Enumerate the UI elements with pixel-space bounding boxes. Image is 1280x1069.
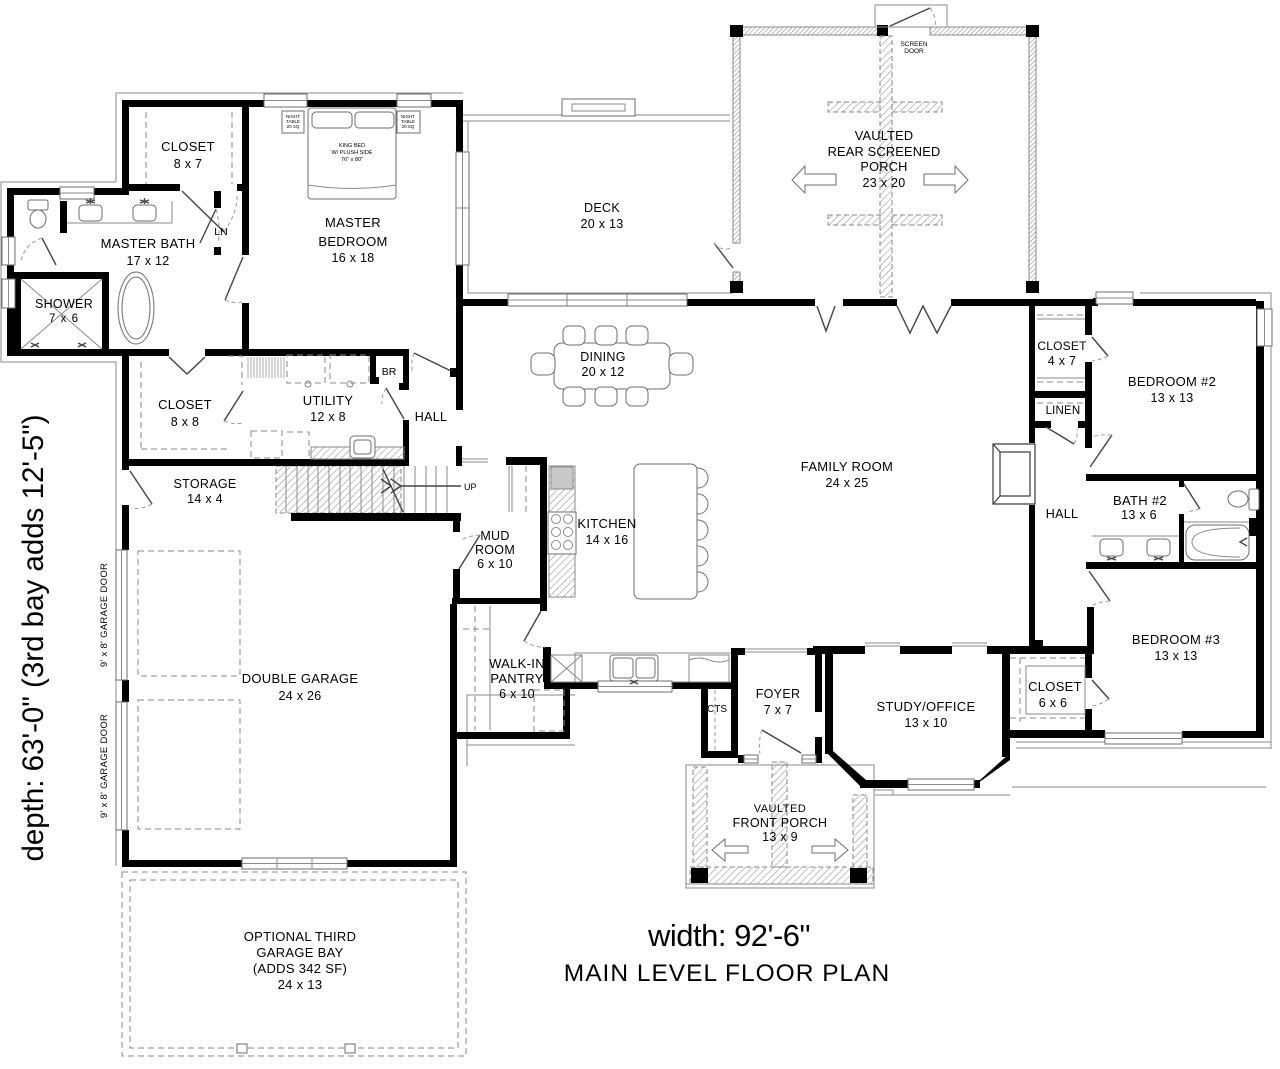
svg-text:MASTER: MASTER	[325, 215, 381, 230]
svg-text:6 x 10: 6 x 10	[477, 557, 513, 571]
svg-text:20 x 13: 20 x 13	[580, 217, 623, 231]
svg-text:CLOSET: CLOSET	[1037, 339, 1087, 353]
svg-text:13 x 10: 13 x 10	[904, 716, 947, 730]
svg-text:REAR SCREENED: REAR SCREENED	[828, 144, 941, 159]
svg-text:(ADDS 342 SF): (ADDS 342 SF)	[253, 961, 347, 976]
svg-text:23 x 20: 23 x 20	[862, 176, 905, 190]
svg-text:depth: 63'-0" (3rd bay adds 12: depth: 63'-0" (3rd bay adds 12'-5")	[17, 414, 50, 861]
svg-text:BEDROOM #2: BEDROOM #2	[1128, 374, 1216, 389]
svg-text:FOYER: FOYER	[756, 687, 801, 701]
svg-text:20 x 12: 20 x 12	[581, 365, 624, 379]
svg-text:HALL: HALL	[1046, 507, 1078, 521]
svg-text:CLOSET: CLOSET	[1028, 679, 1082, 694]
svg-text:FAMILY ROOM: FAMILY ROOM	[801, 459, 893, 474]
svg-text:WALK-IN: WALK-IN	[489, 656, 545, 671]
svg-text:CLOSET: CLOSET	[161, 139, 215, 154]
svg-text:CTS: CTS	[707, 704, 727, 715]
svg-text:UP: UP	[464, 482, 477, 492]
svg-text:BR: BR	[382, 366, 397, 378]
svg-text:UTILITY: UTILITY	[303, 393, 354, 408]
svg-text:7 x 7: 7 x 7	[764, 703, 793, 717]
svg-text:9' x 8' GARAGE DOOR: 9' x 8' GARAGE DOOR	[99, 563, 110, 667]
svg-text:6 x 6: 6 x 6	[1039, 696, 1068, 710]
svg-text:BEDROOM #3: BEDROOM #3	[1132, 632, 1220, 647]
svg-text:STUDY/OFFICE: STUDY/OFFICE	[877, 699, 976, 714]
svg-text:W/ PLUSH SIDE: W/ PLUSH SIDE	[332, 150, 373, 156]
svg-text:14 x 4: 14 x 4	[187, 492, 223, 506]
svg-text:STORAGE: STORAGE	[174, 477, 237, 491]
svg-text:DINING: DINING	[580, 350, 626, 364]
svg-text:KING BED: KING BED	[339, 143, 365, 149]
svg-text:FRONT PORCH: FRONT PORCH	[733, 816, 828, 830]
svg-text:16 x 18: 16 x 18	[331, 251, 374, 265]
svg-text:CLOSET: CLOSET	[158, 397, 212, 412]
svg-text:SCREEN: SCREEN	[900, 41, 927, 48]
svg-text:4 x 7: 4 x 7	[1048, 354, 1077, 368]
svg-text:14 x 16: 14 x 16	[585, 533, 628, 547]
svg-text:MUD: MUD	[480, 529, 509, 543]
svg-text:MAIN LEVEL FLOOR PLAN: MAIN LEVEL FLOOR PLAN	[564, 960, 890, 987]
svg-text:24 x 25: 24 x 25	[825, 476, 868, 490]
svg-text:24 x 13: 24 x 13	[278, 977, 323, 992]
svg-text:DOUBLE GARAGE: DOUBLE GARAGE	[242, 671, 359, 686]
svg-text:13 x 13: 13 x 13	[1150, 391, 1193, 405]
svg-text:BATH #2: BATH #2	[1113, 493, 1167, 508]
svg-text:HALL: HALL	[415, 410, 447, 424]
svg-text:8 x 7: 8 x 7	[174, 157, 203, 171]
svg-text:VAULTED: VAULTED	[754, 803, 807, 815]
svg-text:KITCHEN: KITCHEN	[577, 516, 636, 531]
svg-text:GARAGE BAY: GARAGE BAY	[256, 945, 343, 960]
svg-text:LINEN: LINEN	[1046, 405, 1081, 417]
svg-text:20 SQ: 20 SQ	[402, 124, 415, 129]
svg-text:24 x 26: 24 x 26	[278, 689, 321, 703]
svg-text:6 x 10: 6 x 10	[499, 687, 535, 701]
svg-text:9' x 8' GARAGE DOOR: 9' x 8' GARAGE DOOR	[99, 714, 110, 818]
svg-text:MASTER BATH: MASTER BATH	[101, 236, 196, 251]
svg-text:width: 92'-6": width: 92'-6"	[647, 918, 810, 953]
svg-text:20 SQ: 20 SQ	[287, 124, 300, 129]
svg-text:VAULTED: VAULTED	[855, 128, 914, 143]
svg-text:8 x 8: 8 x 8	[171, 415, 200, 429]
svg-text:76" x 80": 76" x 80"	[341, 157, 363, 163]
svg-text:PANTRY: PANTRY	[490, 671, 543, 686]
svg-text:SHOWER: SHOWER	[35, 297, 93, 311]
svg-text:ROOM: ROOM	[475, 543, 515, 557]
svg-text:DECK: DECK	[584, 201, 620, 215]
svg-text:13 x 13: 13 x 13	[1154, 649, 1197, 663]
svg-text:7 x 6: 7 x 6	[49, 313, 79, 325]
svg-text:LN: LN	[214, 226, 227, 238]
svg-text:DOOR: DOOR	[904, 48, 924, 55]
svg-text:BEDROOM: BEDROOM	[318, 234, 387, 249]
svg-text:PORCH: PORCH	[860, 159, 907, 174]
svg-text:OPTIONAL THIRD: OPTIONAL THIRD	[244, 929, 357, 944]
svg-text:17 x 12: 17 x 12	[126, 254, 169, 268]
svg-text:13 x 6: 13 x 6	[1121, 508, 1157, 522]
svg-text:12 x 8: 12 x 8	[310, 410, 346, 424]
svg-text:13 x 9: 13 x 9	[762, 830, 798, 844]
